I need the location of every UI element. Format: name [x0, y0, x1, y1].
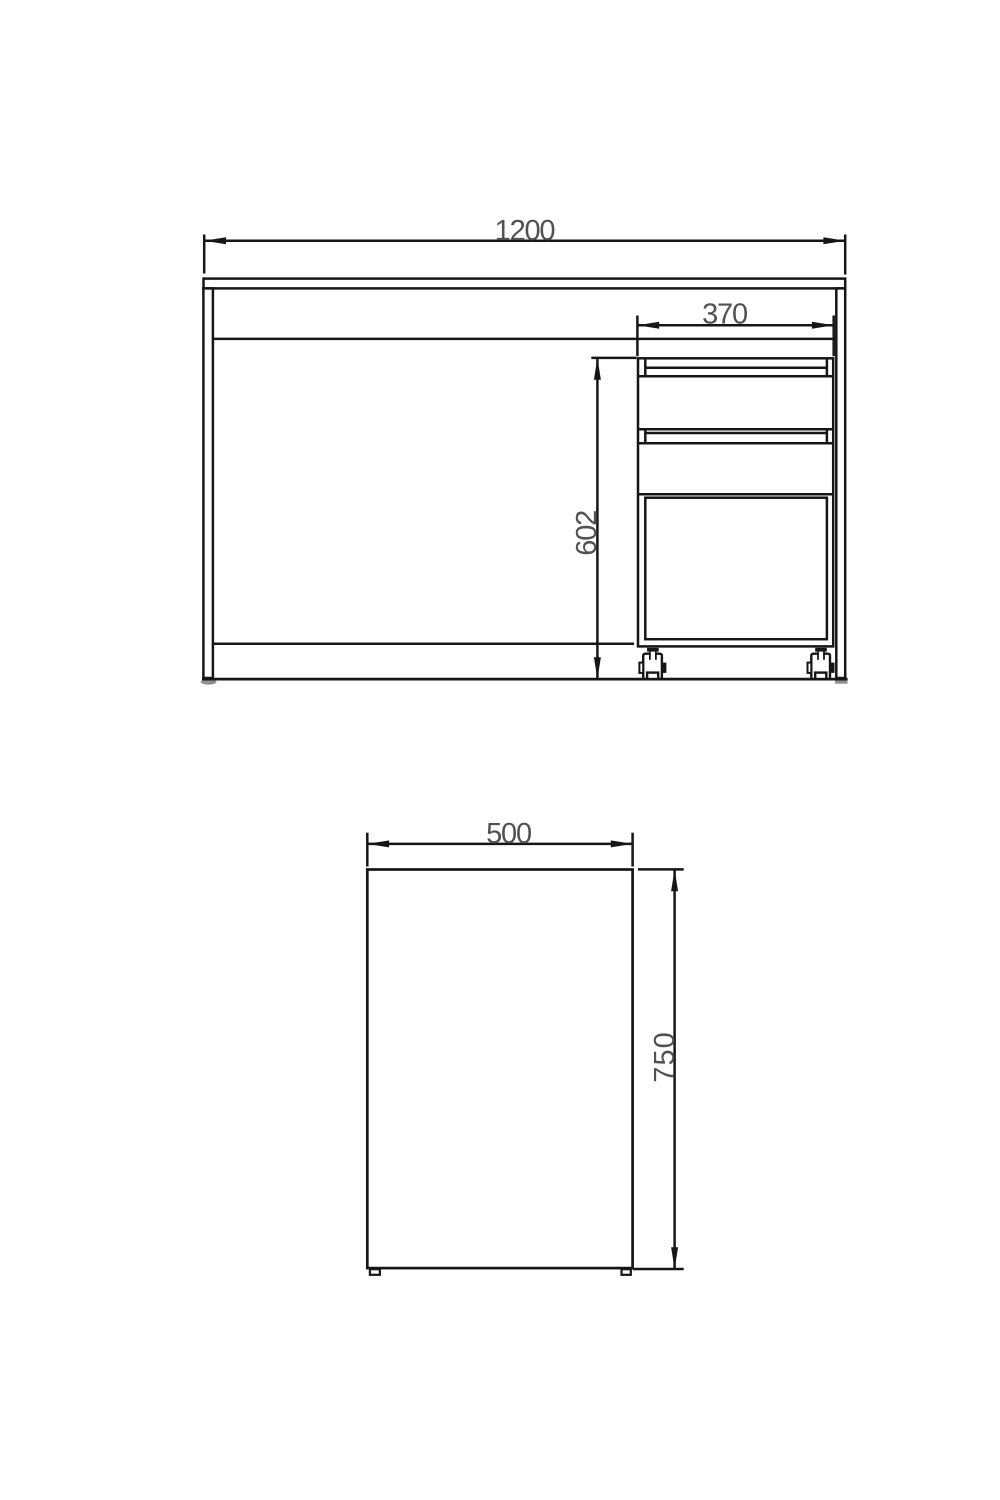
svg-text:602: 602 — [571, 511, 603, 556]
svg-text:370: 370 — [702, 299, 747, 331]
svg-text:1200: 1200 — [495, 215, 555, 247]
svg-text:500: 500 — [486, 818, 531, 850]
svg-text:750: 750 — [649, 1031, 681, 1082]
